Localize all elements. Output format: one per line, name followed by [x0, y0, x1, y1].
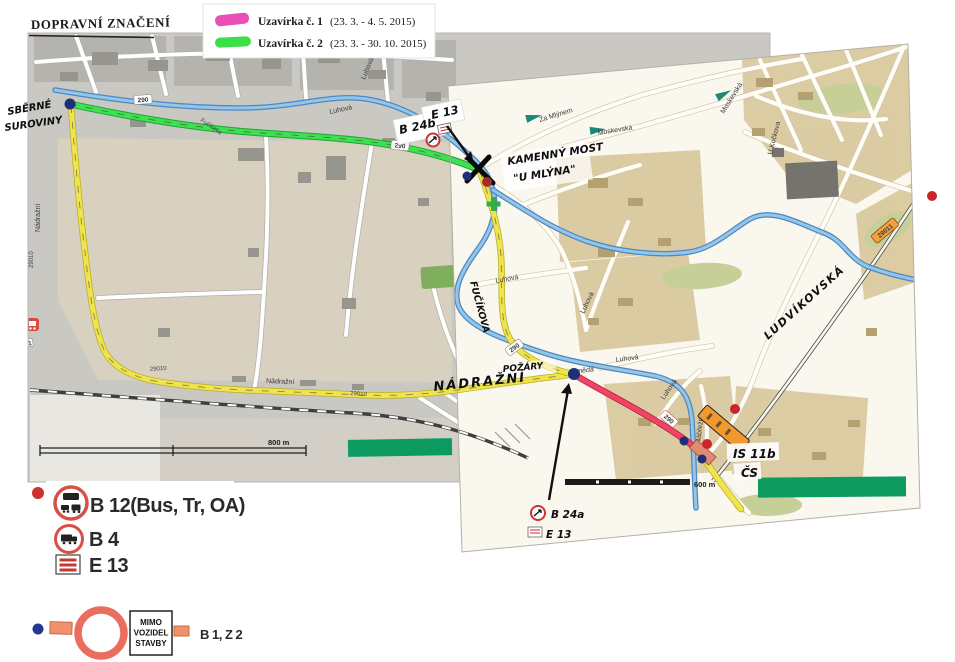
diagram-bar-left: [50, 622, 72, 635]
note-b24a: B 24a: [551, 509, 584, 521]
dot-blue-east-2: [698, 455, 707, 464]
is11b-callout: IS 11b: [727, 442, 780, 462]
street-label-nadrazni-vert: Nádražní: [35, 204, 42, 232]
green-marker-bar-1: [348, 438, 452, 457]
dot-red-east-1: [730, 404, 740, 414]
mimo-vozidel-stavby-panel: MIMO VOZIDEL STAVBY: [130, 611, 172, 655]
legend-b12-label: B 12(Bus, Tr, OA): [90, 495, 245, 517]
sign-legend: B 12(Bus, Tr, OA) B 4 E 13: [32, 481, 245, 583]
b1-circle-sign: [78, 610, 124, 656]
dot-blue-east-1: [680, 437, 689, 446]
road-label-29010-vert: 29010: [29, 251, 35, 268]
scanned-traffic-map-page: Luhová Luhová Fučíkova 290 290 Nádražní …: [0, 0, 955, 662]
diagram-bar-right: [174, 626, 189, 636]
diagram-blue-dot: [33, 624, 44, 635]
b24a-mini-sign-icon: [531, 506, 545, 520]
legend-b4-label: B 4: [89, 529, 120, 551]
legend-dates-closure-1: (23. 3. - 4. 5. 2015): [330, 16, 416, 28]
legend-red-dot: [32, 487, 44, 499]
sports-field: [420, 265, 457, 289]
legend-swatch-closure-2: [215, 36, 251, 48]
road-label-29010-b: 29010: [350, 391, 368, 398]
mimo-line-1: MIMO: [140, 618, 162, 627]
note-is11b: IS 11b: [733, 447, 776, 461]
dot-junction-center: [568, 368, 580, 380]
svg-text:Uzavírka č. 2 (23. 3. -: Uzavírka č. 2 (23. 3. - 30. 10. 2015): [258, 38, 427, 50]
mimo-line-3: STAVBY: [135, 639, 167, 648]
dot-bridge-blue: [463, 172, 472, 181]
legend-dates-closure-2: (23. 3. - 30. 10. 2015): [330, 38, 427, 50]
scale-label-1: 800 m: [268, 438, 290, 447]
dot-junction-west: [65, 99, 76, 110]
page-title: DOPRAVNÍ ZNAČENÍ: [31, 15, 171, 32]
legend-label-closure-2: Uzavírka č. 2: [258, 38, 323, 50]
dot-red-east-2: [702, 439, 712, 449]
e13-mini-sign-icon-2: [528, 527, 542, 537]
field-area: [58, 138, 452, 382]
dot-bridge-red: [482, 177, 492, 187]
street-label-nadrazni-b: Nádražní: [266, 378, 295, 386]
b24b-mini-sign-icon: [427, 134, 440, 147]
legend-label-closure-1: Uzavírka č. 1: [258, 16, 323, 28]
green-marker-bar-2: [758, 476, 906, 497]
dot-red-northeast: [927, 191, 937, 201]
note-cs: ČS: [741, 465, 758, 480]
mimo-line-2: VOZIDEL: [134, 629, 169, 638]
svg-text:290: 290: [137, 97, 149, 105]
svg-text:Uzavírka č. 1 (23. 3. -: Uzavírka č. 1 (23. 3. - 4. 5. 2015): [258, 16, 416, 28]
note-e13-bottom: E 13: [546, 529, 571, 541]
closure-legend: Uzavírka č. 1 (23. 3. - 4. 5. 2015) Uzav…: [203, 4, 435, 58]
b12-sign-icon: [55, 487, 87, 519]
scale-label-2: 600 m: [694, 480, 716, 489]
road-label-29010-a: 29010: [150, 366, 168, 373]
closure-diagram: MIMO VOZIDEL STAVBY B 1, Z 2: [33, 610, 243, 656]
b4-sign-icon: [56, 526, 83, 553]
e13-sign-icon: [56, 555, 80, 574]
road-pill-290-green: 290: [134, 94, 153, 104]
scale-bar-2: [565, 479, 690, 485]
map-canvas: Luhová Luhová Fučíkova 290 290 Nádražní …: [0, 0, 955, 662]
legend-b1z2-label: B 1, Z 2: [200, 627, 243, 642]
factory-building: [785, 161, 839, 200]
legend-e13-label: E 13: [89, 555, 129, 577]
